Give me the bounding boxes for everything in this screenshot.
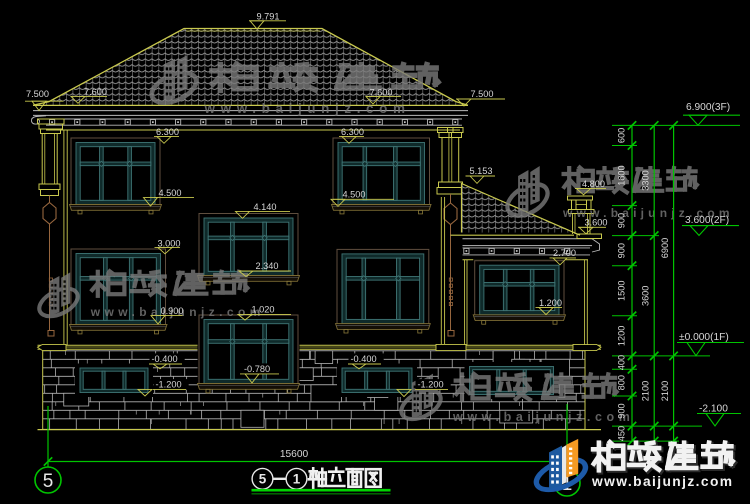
svg-text:-2.100: -2.100 xyxy=(699,404,728,415)
svg-text:3.000: 3.000 xyxy=(158,238,181,248)
svg-text:3600: 3600 xyxy=(641,286,651,306)
svg-text:www.baijunjz.com: www.baijunjz.com xyxy=(452,410,634,424)
svg-text:3.600: 3.600 xyxy=(585,218,608,228)
svg-text:800: 800 xyxy=(617,375,627,390)
svg-text:www.baijunjz.com: www.baijunjz.com xyxy=(591,474,733,489)
svg-text:2.340: 2.340 xyxy=(256,261,279,271)
svg-text:±0.000(1F): ±0.000(1F) xyxy=(679,332,729,343)
svg-text:www.baijunjz.com: www.baijunjz.com xyxy=(204,101,411,116)
svg-text:-1.200: -1.200 xyxy=(156,380,182,390)
svg-text:900: 900 xyxy=(617,243,627,258)
svg-text:5: 5 xyxy=(43,471,54,492)
svg-text:-1.200: -1.200 xyxy=(418,380,444,390)
svg-text:15600: 15600 xyxy=(280,449,309,460)
svg-text:7.500: 7.500 xyxy=(471,89,494,99)
svg-text:7.500: 7.500 xyxy=(26,89,49,99)
svg-text:7.600: 7.600 xyxy=(370,87,393,97)
svg-text:1200: 1200 xyxy=(617,326,627,346)
svg-text:9.791: 9.791 xyxy=(257,12,280,22)
svg-text:1.020: 1.020 xyxy=(252,305,275,315)
svg-text:6900: 6900 xyxy=(660,238,670,258)
svg-text:2100: 2100 xyxy=(641,381,651,401)
svg-text:3.600(2F): 3.600(2F) xyxy=(685,215,729,226)
svg-text:4.500: 4.500 xyxy=(343,189,366,199)
svg-text:1: 1 xyxy=(293,472,301,487)
svg-text:6.300: 6.300 xyxy=(156,127,179,137)
svg-text:400: 400 xyxy=(617,355,627,370)
svg-text:-0.400: -0.400 xyxy=(351,354,377,364)
svg-text:5: 5 xyxy=(259,472,267,487)
svg-text:900: 900 xyxy=(617,213,627,228)
svg-text:6.900(3F): 6.900(3F) xyxy=(686,102,730,113)
svg-text:5.153: 5.153 xyxy=(470,166,493,176)
svg-text:2.700: 2.700 xyxy=(553,248,576,258)
svg-text:1.200: 1.200 xyxy=(539,298,562,308)
svg-text:900: 900 xyxy=(617,403,627,418)
svg-text:2100: 2100 xyxy=(660,381,670,401)
svg-text:450: 450 xyxy=(617,426,627,441)
svg-text:3300: 3300 xyxy=(641,170,651,190)
svg-text:4.140: 4.140 xyxy=(254,202,277,212)
svg-text:600: 600 xyxy=(617,128,627,143)
svg-text:4.500: 4.500 xyxy=(159,188,182,198)
svg-text:7.600: 7.600 xyxy=(84,87,107,97)
svg-text:-0.400: -0.400 xyxy=(152,354,178,364)
svg-text:0.900: 0.900 xyxy=(161,306,184,316)
svg-text:-0.780: -0.780 xyxy=(244,364,270,374)
svg-text:4.800: 4.800 xyxy=(582,179,605,189)
svg-text:1500: 1500 xyxy=(617,281,627,301)
svg-text:6.300: 6.300 xyxy=(341,127,364,137)
svg-text:1800: 1800 xyxy=(617,165,627,185)
